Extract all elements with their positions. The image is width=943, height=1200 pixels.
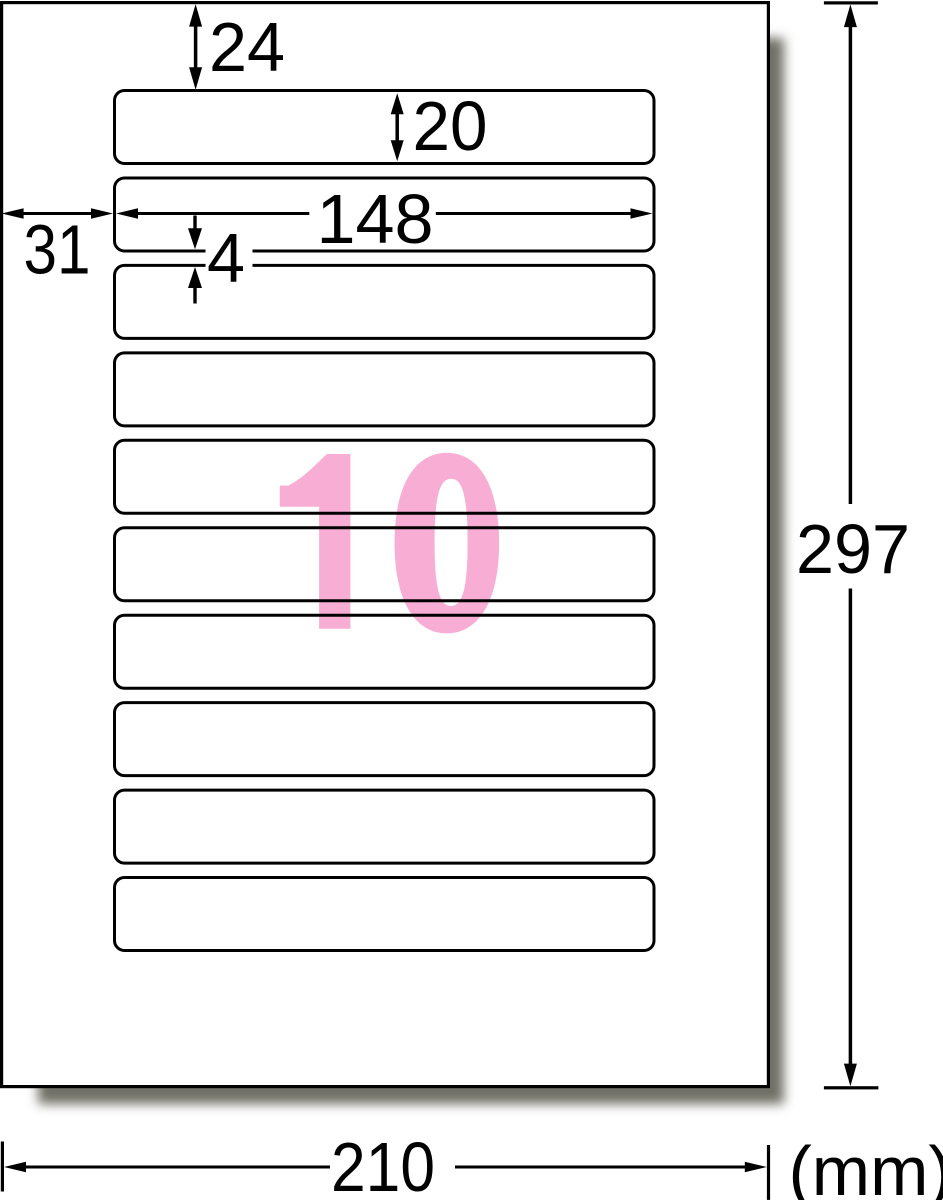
svg-text:4: 4 xyxy=(207,219,245,297)
svg-text:210: 210 xyxy=(331,1128,435,1200)
svg-text:31: 31 xyxy=(24,211,91,289)
svg-text:(mm): (mm) xyxy=(789,1132,943,1200)
svg-text:148: 148 xyxy=(317,180,434,258)
svg-text:297: 297 xyxy=(796,510,910,588)
svg-text:24: 24 xyxy=(209,8,285,86)
svg-text:20: 20 xyxy=(413,87,488,165)
